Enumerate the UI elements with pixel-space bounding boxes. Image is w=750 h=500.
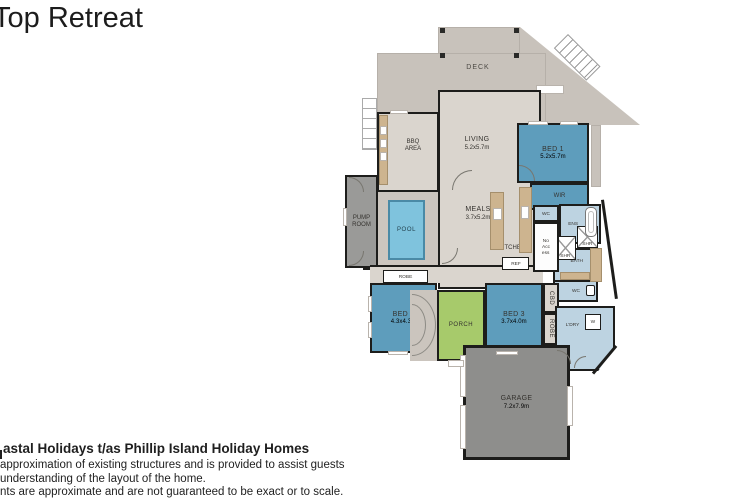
window	[388, 351, 408, 355]
garage-door-gap	[460, 405, 466, 449]
room-label: GARAGE	[501, 395, 533, 404]
room-label: PUMP	[353, 215, 370, 222]
bath-vanity	[560, 272, 590, 280]
room-label: WC	[542, 211, 550, 216]
angled-wall	[601, 200, 618, 299]
kitchen-island	[490, 192, 504, 250]
washer-box: W	[585, 314, 601, 330]
floorplan-page: Top Retreat DECK PUMP ROOM POOL LIVING 5…	[0, 0, 750, 500]
kitchen-bench	[519, 187, 532, 253]
appliance-icon	[380, 152, 387, 161]
room-label: AREA	[405, 146, 421, 153]
no-access-room: No Acc ess	[533, 222, 559, 272]
room-label: ROOM	[352, 222, 371, 229]
appliance-icon	[380, 126, 387, 135]
room-label: LIVING	[451, 136, 503, 145]
room-label: WIR	[554, 193, 566, 200]
room-label: ess	[542, 251, 549, 256]
vanity-bench	[590, 248, 602, 282]
pool-label: POOL	[397, 227, 416, 234]
window	[368, 296, 372, 312]
living-label: LIVING 5.2x5.7m	[451, 136, 503, 151]
window	[368, 322, 372, 338]
footer-disclaimer-line: nts are approximate and are not guarante…	[0, 486, 343, 498]
pool: POOL	[388, 200, 425, 260]
robe-label: ROBE	[399, 274, 413, 279]
clipped-letter-fragment	[0, 450, 2, 459]
deck-post	[514, 53, 519, 58]
robe-bed2: ROBE	[383, 270, 428, 283]
deck-post	[440, 53, 445, 58]
sink-icon	[493, 208, 502, 220]
window	[560, 121, 578, 125]
room-label: BBQ	[407, 139, 420, 146]
fridge-box: REF	[502, 257, 529, 270]
garage-door-gap	[567, 386, 573, 426]
footer-disclaimer-line: approximation of existing structures and…	[0, 459, 345, 471]
washer-label: W	[591, 320, 596, 325]
room-dims: 7.2x7.9m	[504, 404, 529, 410]
window	[390, 110, 408, 114]
room-label: ROBE	[548, 319, 554, 338]
room-wc1: WC	[533, 205, 559, 222]
room-label: CBD	[548, 291, 554, 305]
front-step	[448, 360, 464, 367]
floor-plan: DECK PUMP ROOM POOL LIVING 5.2x5.7m MEAL…	[338, 8, 710, 478]
appliance-icon	[380, 139, 387, 148]
room-garage: GARAGE 7.2x7.9m	[463, 345, 570, 460]
footer-company: astal Holidays t/as Phillip Island Holid…	[3, 441, 309, 456]
window	[528, 121, 548, 125]
deck-side-strip	[591, 125, 601, 187]
room-dims: 5.2x5.7m	[540, 154, 565, 160]
room-dims: 3.7x4.0m	[501, 319, 526, 325]
room-label: Acc	[542, 245, 550, 250]
deck-post	[440, 28, 445, 33]
room-label: L'DRY	[566, 323, 580, 328]
window	[496, 351, 518, 355]
sink-icon	[521, 206, 529, 219]
room-label: SHR	[560, 254, 570, 259]
toilet-icon	[586, 285, 595, 296]
deck-post	[514, 28, 519, 33]
room-label: SHR	[582, 242, 592, 247]
room-label: WC	[572, 289, 580, 294]
room-label: No	[543, 239, 549, 244]
room-label: PORCH	[449, 322, 473, 329]
room-label: BED 3	[503, 311, 525, 320]
window	[343, 208, 347, 226]
bathtub-icon	[585, 207, 597, 237]
page-title: Top Retreat	[0, 2, 143, 35]
deck-label: DECK	[456, 64, 500, 71]
room-dims: 5.2x5.7m	[451, 145, 503, 152]
footer-disclaimer-line: understanding of the layout of the home.	[0, 473, 206, 485]
stairs-icon	[362, 98, 377, 150]
room-bed3: BED 3 3.7x4.0m	[485, 283, 543, 353]
fridge-label: REF	[511, 261, 521, 266]
room-label: BED 1	[542, 146, 564, 155]
